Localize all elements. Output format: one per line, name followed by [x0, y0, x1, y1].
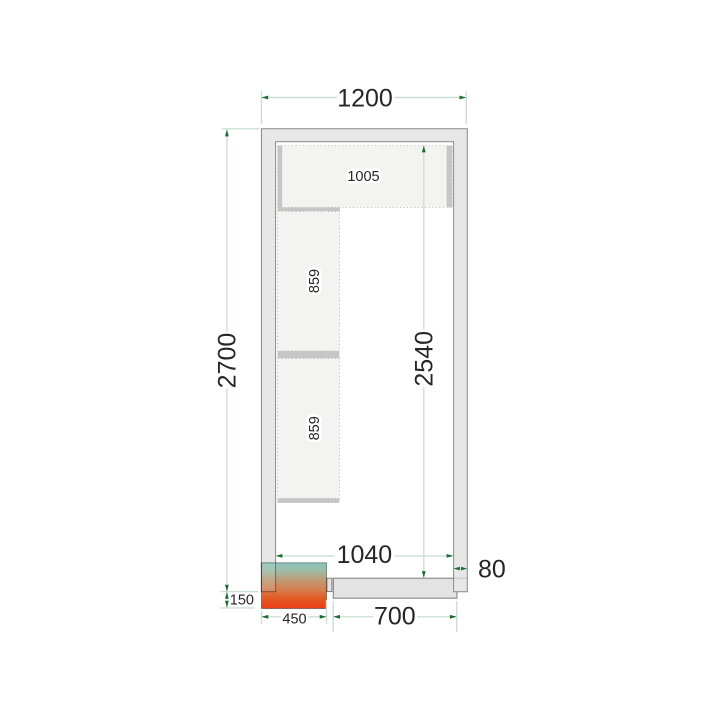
svg-text:700: 700: [374, 602, 416, 630]
svg-text:2540: 2540: [411, 331, 439, 387]
svg-text:150: 150: [230, 593, 254, 609]
svg-text:1200: 1200: [337, 84, 393, 112]
svg-text:450: 450: [282, 612, 306, 628]
svg-text:1040: 1040: [337, 541, 393, 569]
svg-text:859: 859: [307, 269, 323, 293]
svg-text:80: 80: [478, 555, 506, 583]
svg-text:2700: 2700: [214, 333, 242, 389]
svg-text:1005: 1005: [347, 169, 379, 185]
svg-text:859: 859: [307, 416, 323, 440]
